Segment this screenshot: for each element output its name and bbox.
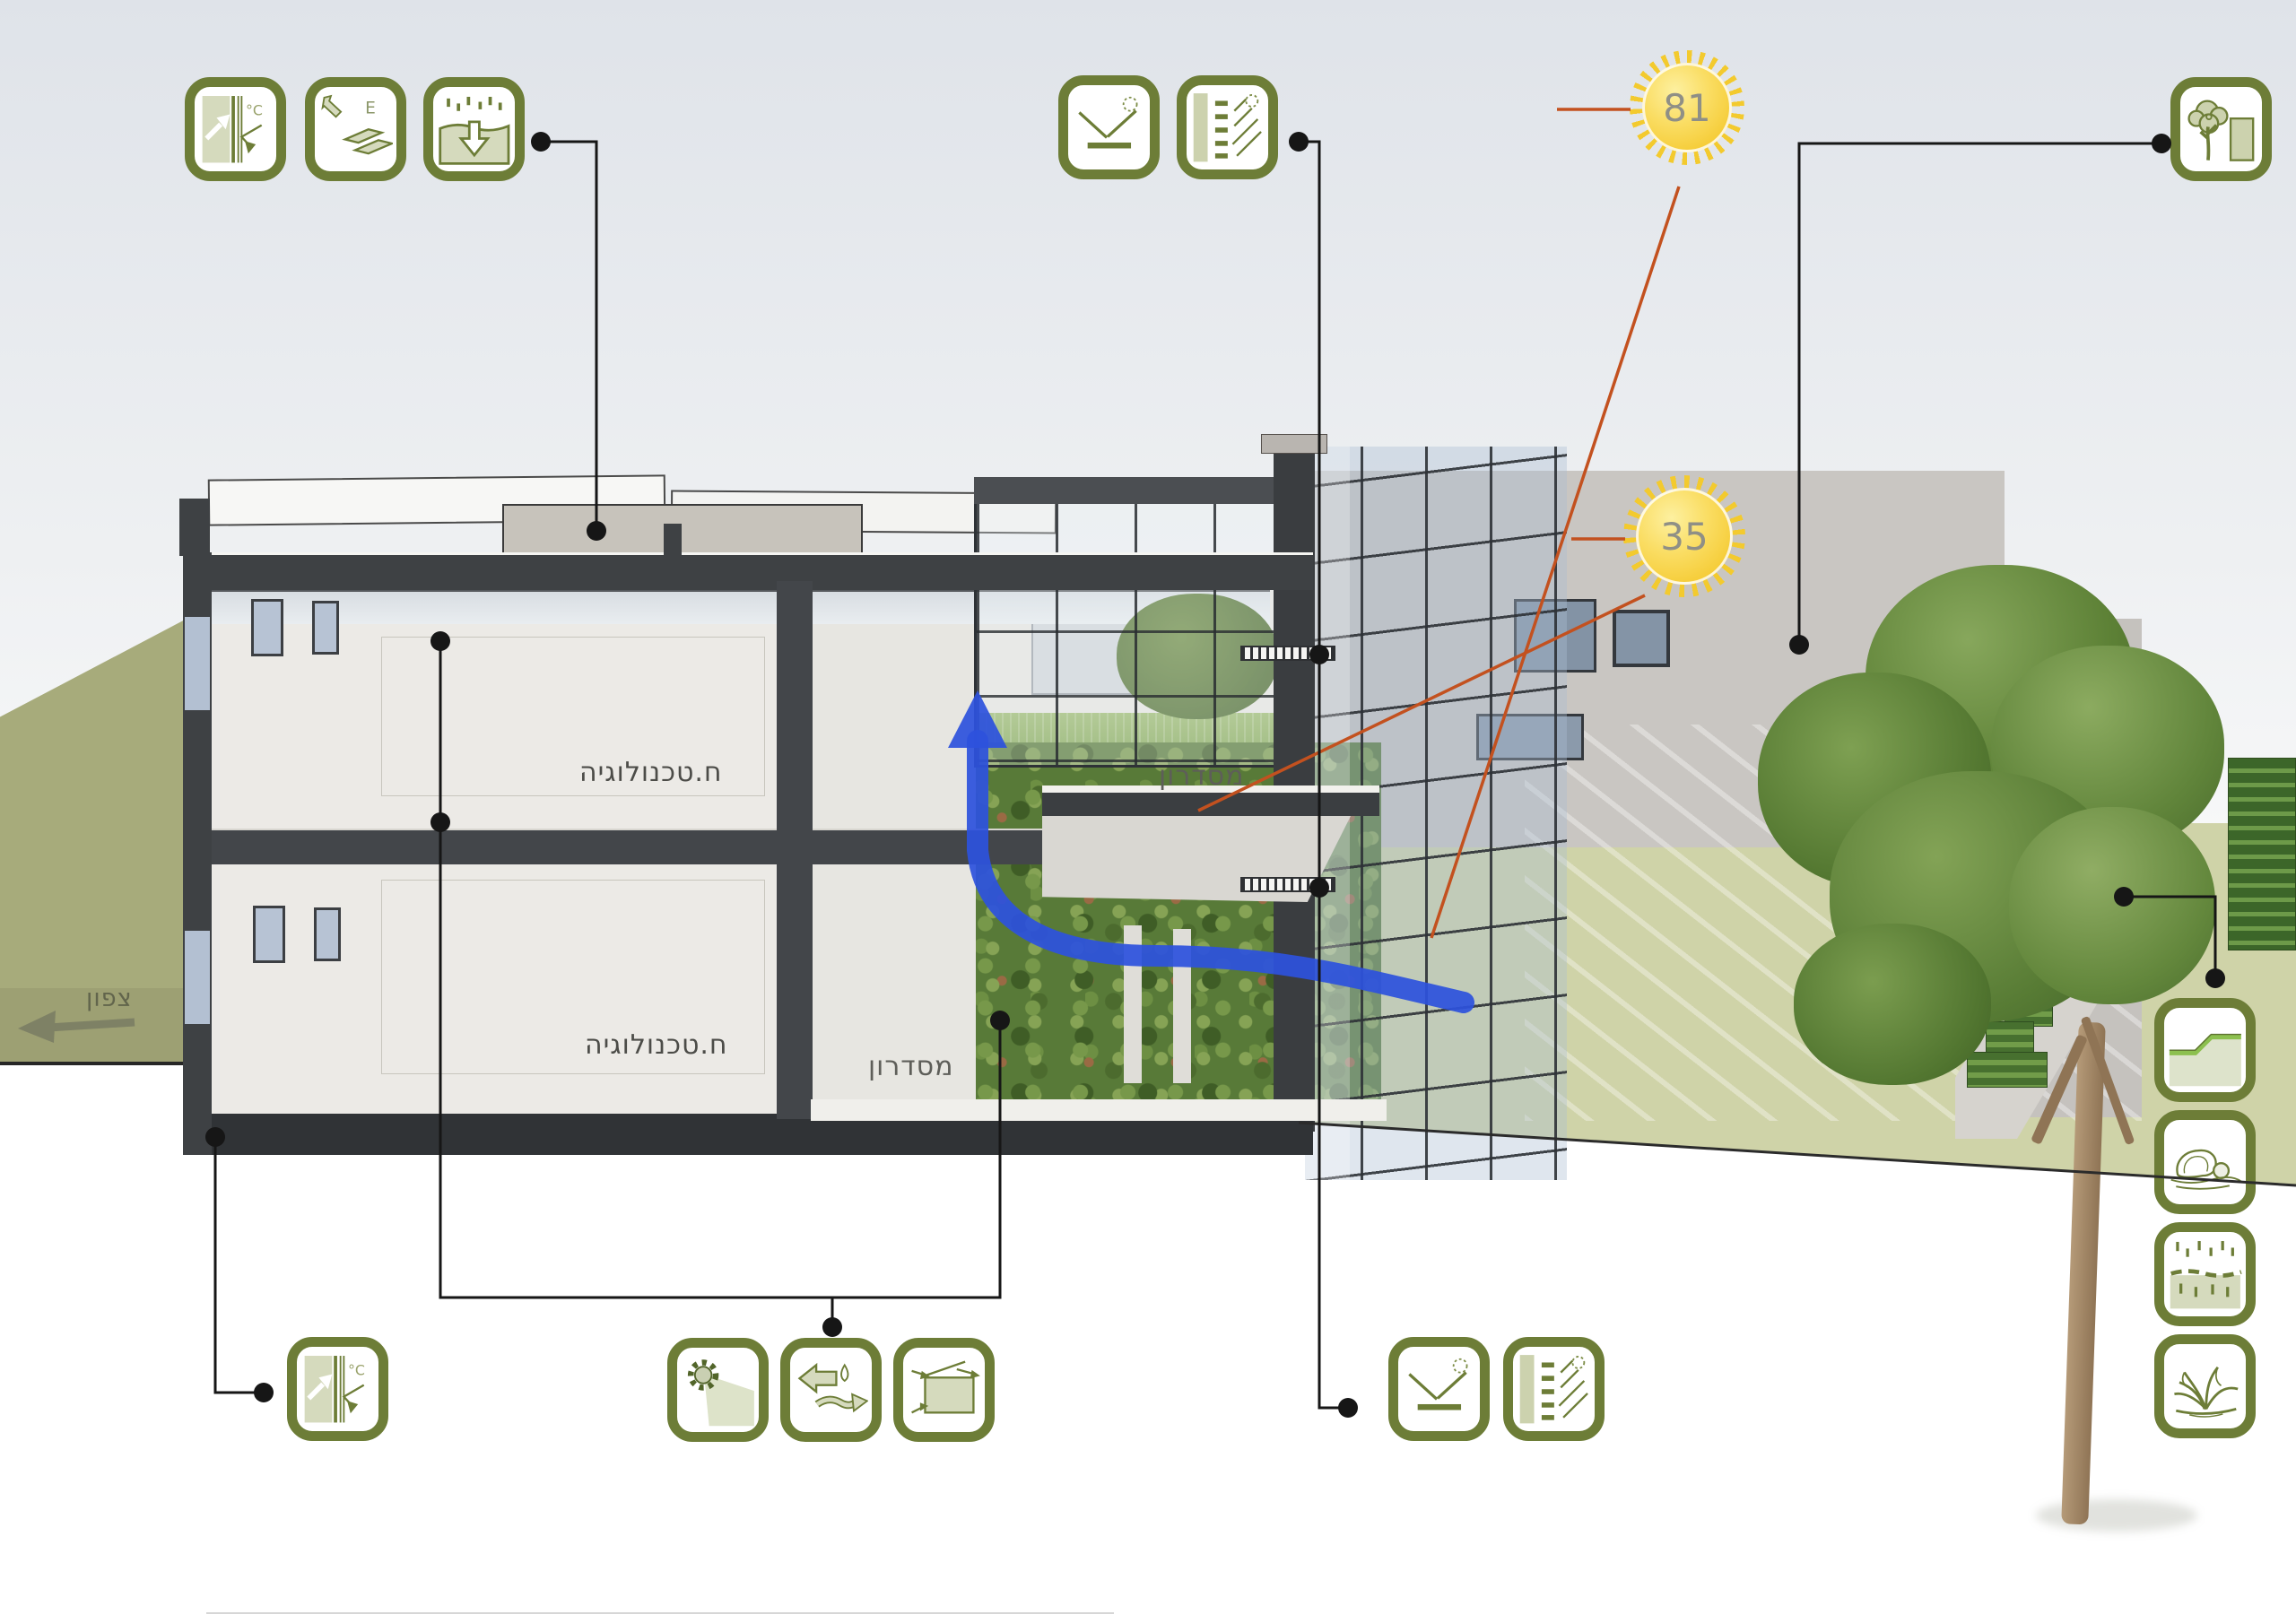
corridor-label-upper: מסדרון <box>1159 760 1245 792</box>
sun-ray-lines <box>1198 109 1679 938</box>
summer-sun-ray <box>1431 187 1679 938</box>
technology-room-label-lower: ח.טכנולוגיה <box>585 1029 728 1061</box>
airflow-arrowhead <box>948 690 1007 748</box>
north-arrow <box>18 1011 135 1043</box>
north-label: צפון <box>86 985 133 1012</box>
corridor-label-lower: מסדרון <box>868 1051 954 1082</box>
winter-sun-ray <box>1198 595 1645 811</box>
annotation-overlay <box>0 0 2296 1623</box>
ground-line <box>1299 1123 2296 1185</box>
technology-room-label-upper: ח.טכנולוגיה <box>579 757 723 788</box>
